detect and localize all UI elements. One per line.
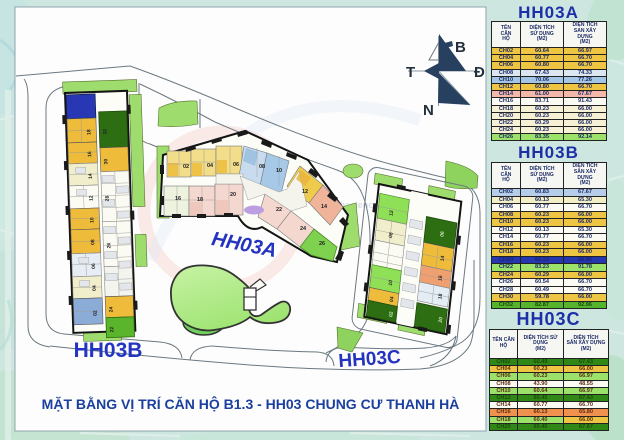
svg-text:22: 22: [276, 207, 282, 213]
svg-text:26: 26: [106, 242, 112, 248]
svg-text:06: 06: [233, 162, 239, 168]
svg-text:24: 24: [300, 226, 307, 232]
svg-text:16: 16: [87, 151, 93, 157]
svg-text:18: 18: [197, 197, 203, 203]
svg-text:12: 12: [89, 195, 95, 201]
svg-text:08: 08: [90, 239, 96, 245]
svg-text:04: 04: [207, 163, 214, 169]
svg-text:12: 12: [302, 189, 308, 195]
svg-text:02: 02: [93, 310, 99, 316]
svg-text:20: 20: [230, 192, 236, 198]
svg-text:06: 06: [91, 263, 97, 269]
svg-text:02: 02: [183, 164, 189, 170]
svg-text:22: 22: [109, 326, 115, 332]
svg-text:32: 32: [102, 129, 108, 135]
svg-text:16: 16: [175, 196, 181, 202]
svg-text:26: 26: [319, 241, 325, 247]
svg-text:30: 30: [103, 158, 109, 164]
svg-text:HH03B: HH03B: [74, 339, 143, 362]
svg-text:T: T: [406, 64, 415, 81]
svg-text:HH03C: HH03C: [338, 347, 402, 372]
svg-text:Đ: Đ: [474, 64, 485, 81]
svg-text:10: 10: [276, 168, 282, 174]
svg-text:14: 14: [321, 204, 328, 210]
svg-text:24: 24: [108, 306, 114, 312]
svg-text:B: B: [455, 39, 466, 56]
svg-text:N: N: [423, 102, 434, 119]
svg-text:10: 10: [89, 217, 95, 223]
svg-text:08: 08: [259, 164, 265, 170]
svg-text:28: 28: [105, 195, 111, 201]
svg-text:14: 14: [88, 173, 94, 179]
svg-text:04: 04: [92, 285, 98, 291]
svg-text:18: 18: [86, 129, 92, 135]
